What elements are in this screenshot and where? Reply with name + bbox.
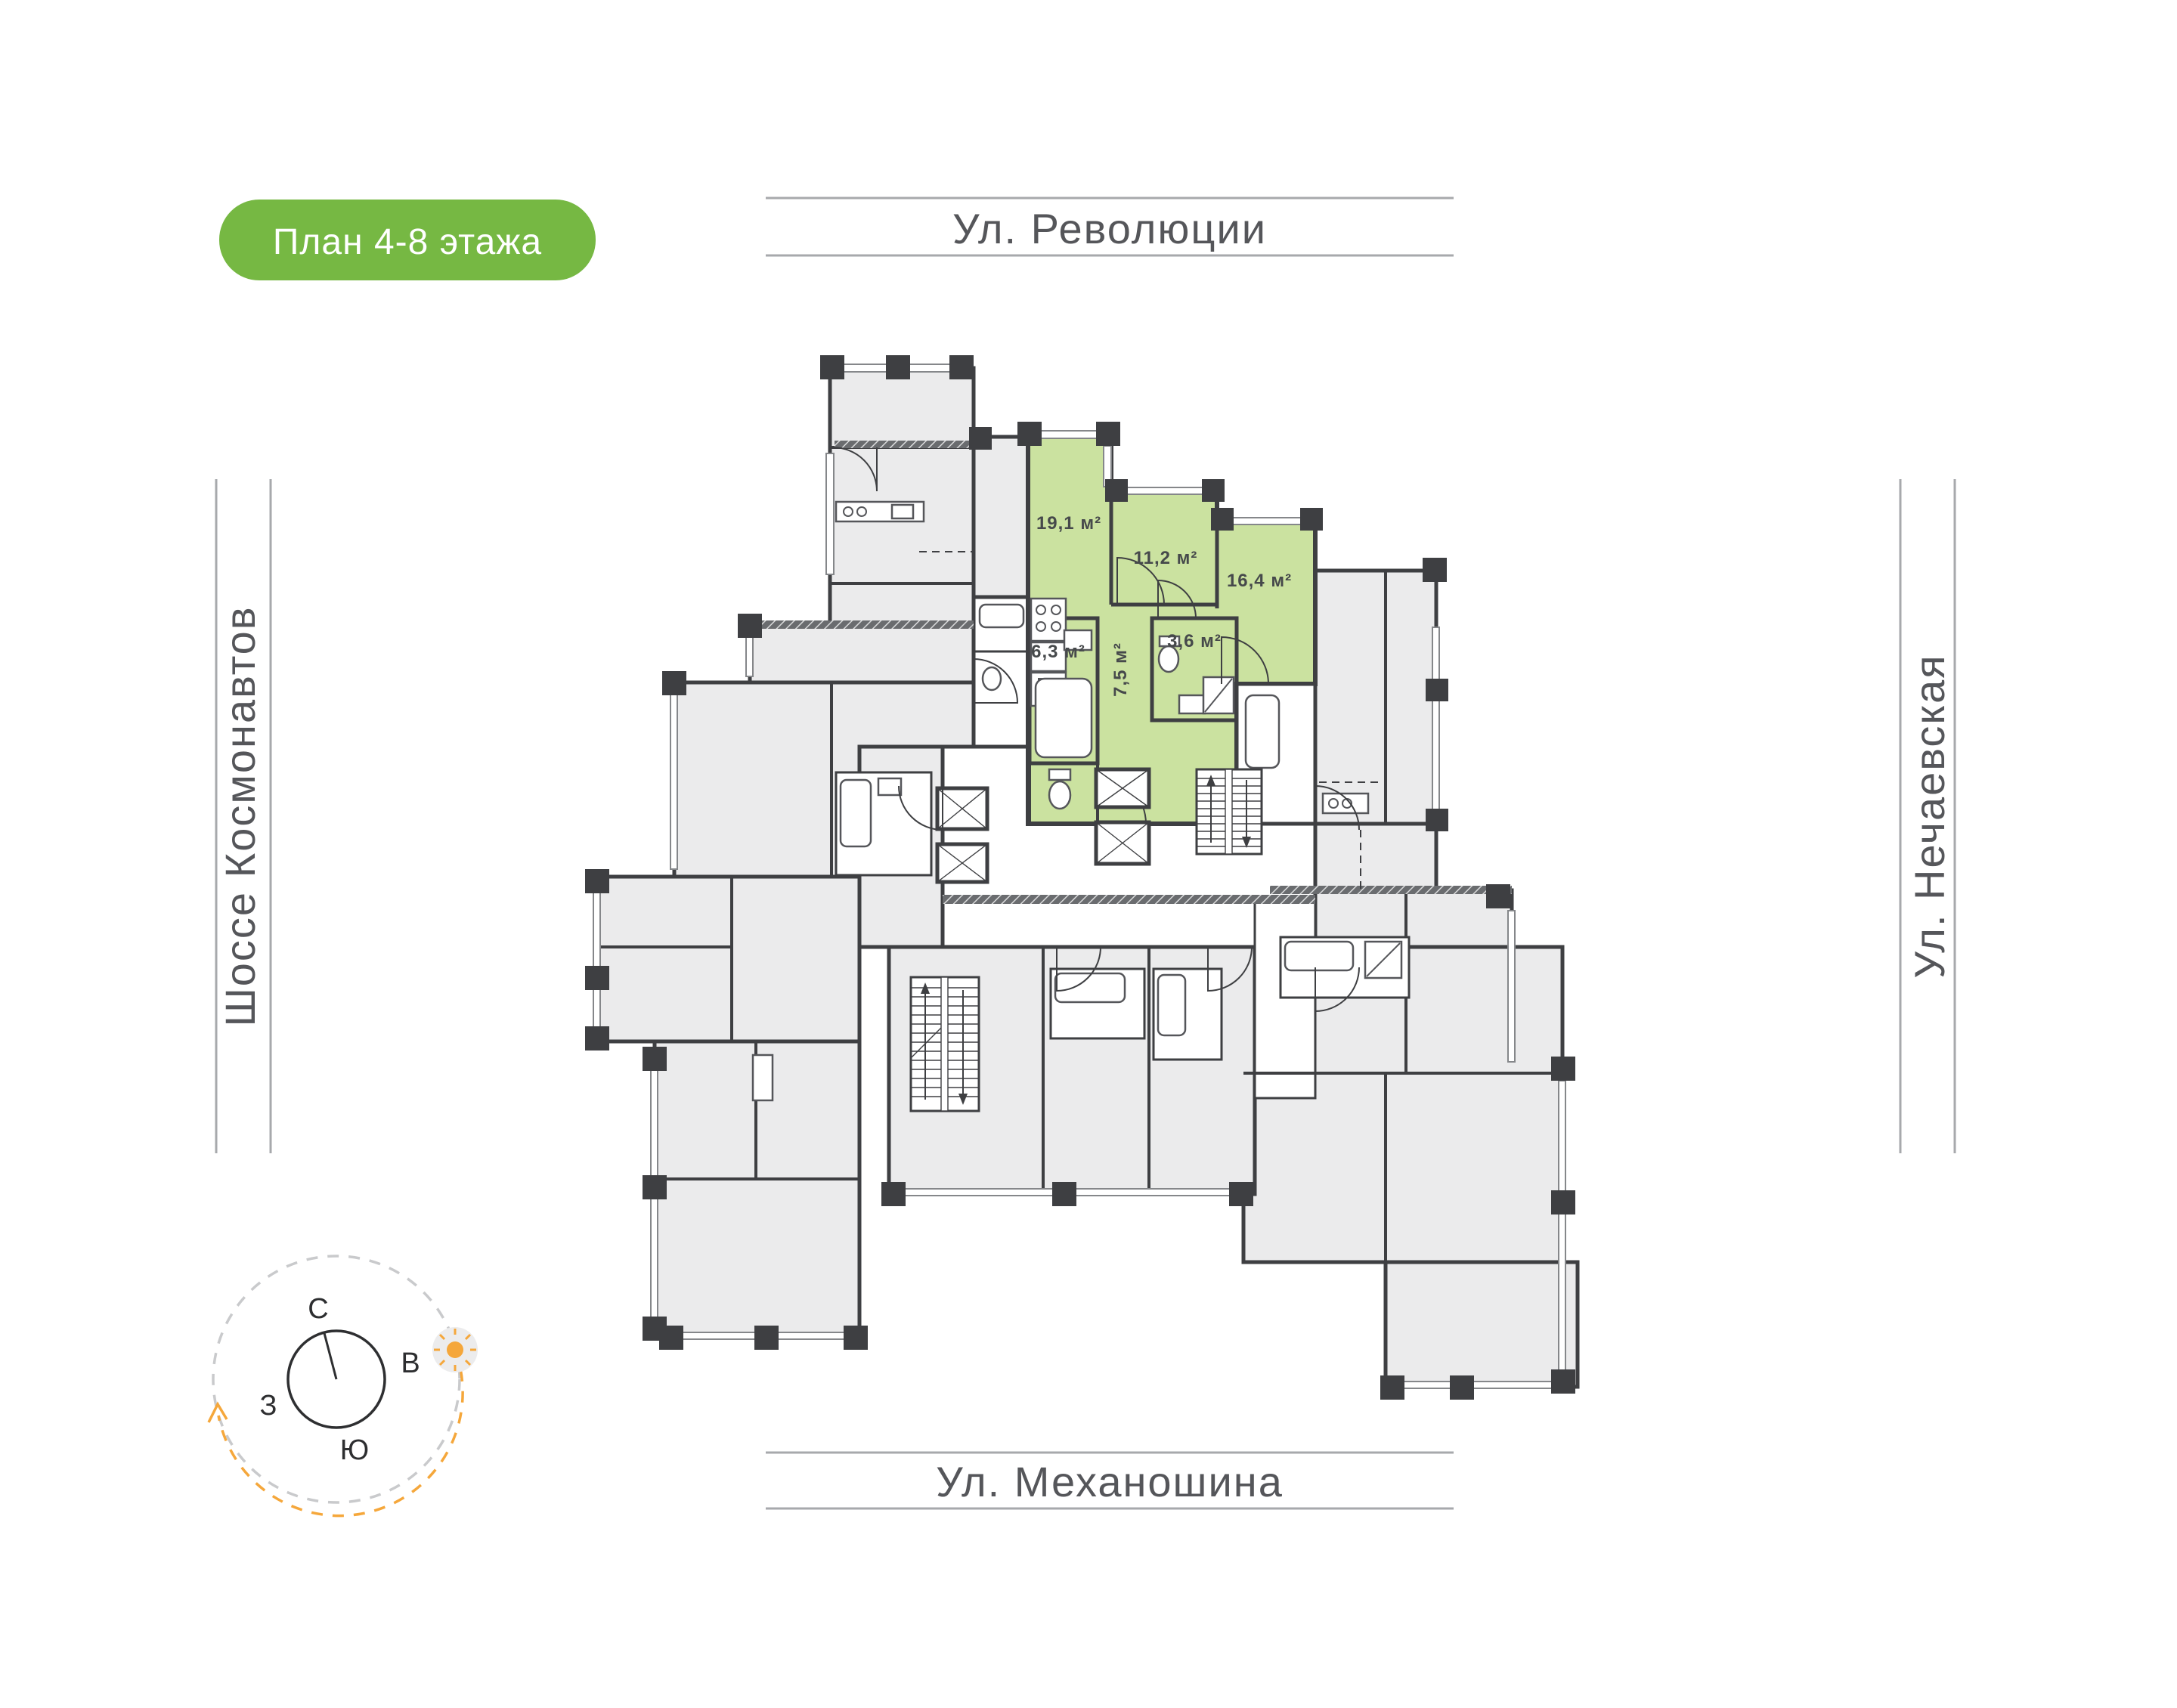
street-bottom-label: Ул. Механошина [936, 1458, 1284, 1505]
elevator-shaft [1096, 822, 1149, 864]
street-left: Шоссе Космонавтов [216, 479, 271, 1153]
bathtub-icon [841, 780, 871, 846]
block-right-top [1315, 571, 1436, 824]
compass-arrow-icon [209, 1404, 227, 1422]
right-leg-corridor [1255, 902, 1315, 1098]
room-area-3-6: 3,6 м² [1167, 631, 1222, 651]
street-right: Ул. Нечаевская [1900, 479, 1955, 1153]
room-area-11-2: 11,2 м² [1134, 548, 1198, 568]
street-right-label: Ул. Нечаевская [1906, 654, 1953, 978]
elevator-shaft [1096, 769, 1149, 807]
bathtub-icon [1246, 695, 1279, 768]
room-area-7-5: 7,5 м² [1110, 642, 1131, 697]
compass-east: В [401, 1348, 420, 1379]
elevator-shaft [937, 844, 987, 882]
street-left-label: Шоссе Космонавтов [216, 605, 264, 1026]
room-area-16-4: 16,4 м² [1227, 571, 1292, 591]
left-leg-upper [597, 877, 859, 1041]
compass-south: Ю [340, 1434, 369, 1466]
bathtub-icon [980, 605, 1023, 627]
floor-badge: План 4-8 этажа [219, 200, 596, 280]
compass-west: З [260, 1390, 277, 1422]
street-top-label: Ул. Революции [952, 205, 1267, 252]
room-area-6-3: 6,3 м² [1031, 642, 1085, 662]
bathtub-icon [1158, 975, 1185, 1035]
right-leg-lower [1386, 1262, 1578, 1387]
floor-plan-canvas: План 4-8 этажа Ул. Революции Ул. Механош… [0, 0, 2177, 1708]
block-left-step-1 [750, 625, 974, 682]
wing-strip [974, 437, 1030, 597]
bathtub-icon [1285, 942, 1353, 970]
staircase-main [1197, 769, 1262, 854]
compass-north: С [308, 1293, 328, 1325]
staircase-secondary [911, 977, 979, 1111]
compass-rose: С В З Ю [209, 1256, 478, 1516]
floor-badge-label: План 4-8 этажа [273, 222, 542, 262]
elevator-shaft [937, 788, 987, 829]
bathtub-icon [1055, 973, 1125, 1002]
floor-plan-page: План 4-8 этажа Ул. Революции Ул. Механош… [0, 0, 2177, 1708]
street-top: Ул. Революции [766, 198, 1454, 255]
street-bottom: Ул. Механошина [766, 1453, 1454, 1508]
room-area-19-1: 19,1 м² [1036, 513, 1101, 534]
